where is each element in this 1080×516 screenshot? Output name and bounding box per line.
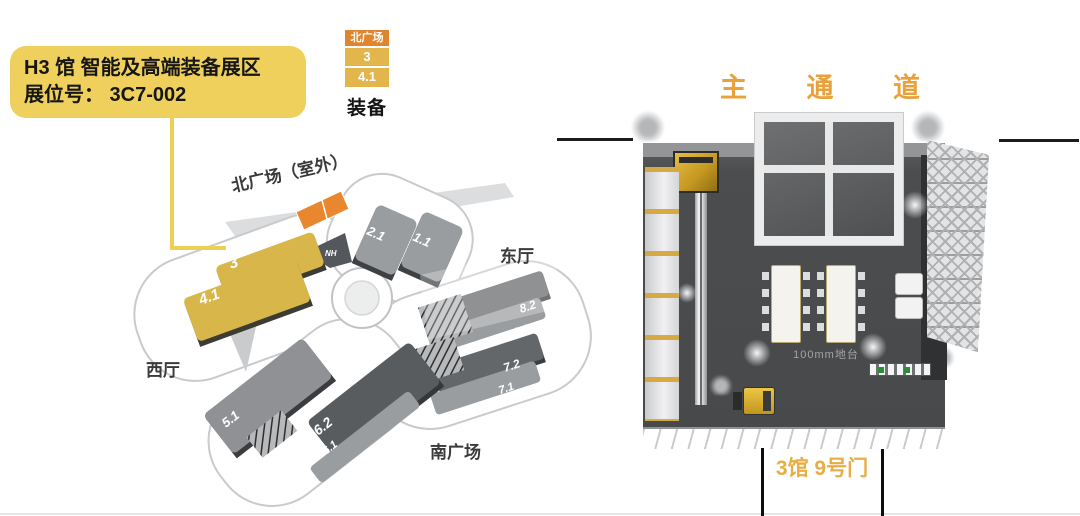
conference-table (771, 265, 801, 343)
north-plaza-outdoor-label: 北广场（室外） (229, 150, 349, 196)
frame-mullion-horizontal (764, 165, 894, 173)
center-ring-inner (345, 281, 379, 315)
platform-label: 100mm地台 (761, 346, 891, 362)
east-hall-label: 东厅 (500, 246, 534, 266)
shelving-racks (645, 167, 679, 421)
callout-connector-line (172, 116, 226, 248)
left-boundary-line (557, 138, 633, 141)
pallet-rack (869, 363, 931, 376)
legend-north-plaza: 北广场 (345, 30, 389, 46)
south-plaza-label: 南广场 (430, 442, 481, 462)
frame-mullion-vertical (825, 122, 833, 236)
tree-decoration (631, 111, 665, 141)
booth-floor: 100mm地台 (643, 143, 945, 427)
gate-marker-right (881, 449, 884, 516)
tree-decoration (911, 111, 945, 141)
equipment-box (895, 297, 923, 319)
hall-legend: 北广场 3 4.1 装备 (345, 28, 389, 120)
main-aisle-label: 主 通 道 (675, 66, 965, 105)
right-boundary-line (999, 139, 1079, 142)
booth-render-panel: 主 通 道 100mm地台 3馆 9号门 (555, 0, 1080, 516)
crane-rail (695, 193, 707, 405)
truss-wall (927, 140, 989, 352)
west-hall-label: 西厅 (146, 361, 180, 380)
equipment-box (895, 273, 923, 295)
hall-nh-label: NH (325, 249, 337, 258)
stacker-crane (673, 151, 719, 193)
forklift (743, 387, 775, 415)
legend-hall-4-1: 4.1 (345, 68, 389, 86)
plant-decoration (709, 375, 733, 395)
floor-light (677, 283, 697, 303)
callout-booth-number: 展位号： 3C7-002 (24, 82, 292, 109)
conference-table (826, 265, 856, 343)
floor-light (901, 191, 929, 219)
legend-caption: 装备 (345, 93, 389, 120)
callout-hall-title: H3 馆 智能及高端装备展区 (24, 55, 292, 82)
frame-structure (755, 113, 903, 245)
legend-hall-3: 3 (345, 48, 389, 66)
entrance-apron (643, 427, 945, 449)
booth-callout: H3 馆 智能及高端装备展区 展位号： 3C7-002 (10, 46, 306, 118)
gate-label: 3馆 9号门 (763, 452, 881, 482)
